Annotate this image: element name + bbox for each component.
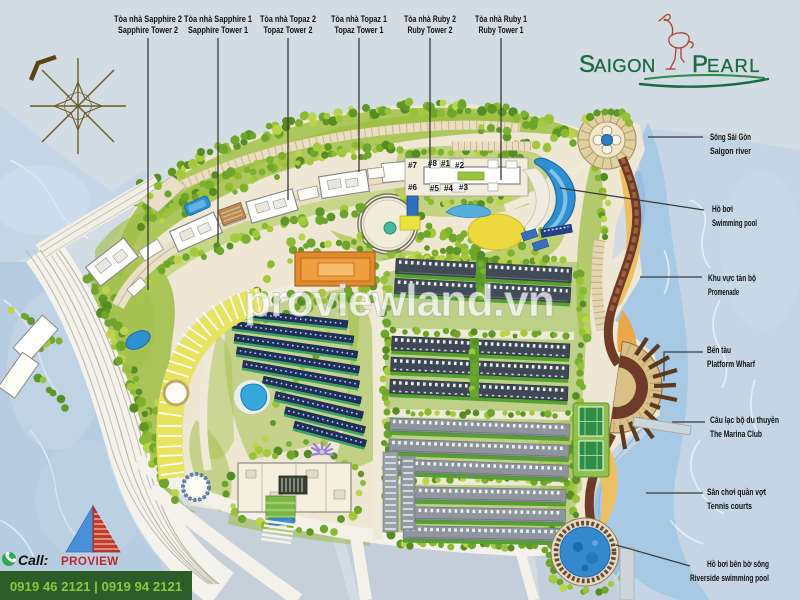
- svg-text:Platform Wharf: Platform Wharf: [707, 359, 756, 370]
- svg-text:AIGON: AIGON: [594, 55, 656, 76]
- svg-text:proviewland.vn: proviewland.vn: [244, 277, 554, 326]
- svg-text:The Marina Club: The Marina Club: [710, 429, 762, 440]
- svg-text:Promenade: Promenade: [708, 287, 739, 298]
- svg-text:Tennis courts: Tennis courts: [707, 501, 752, 512]
- svg-text:Câu lạc bộ du thuyền: Câu lạc bộ du thuyền: [710, 415, 779, 426]
- svg-text:Khu vực tản bộ: Khu vực tản bộ: [708, 273, 756, 284]
- svg-text:Swimming pool: Swimming pool: [712, 218, 757, 229]
- svg-text:PROVIEW: PROVIEW: [61, 555, 119, 568]
- svg-text:Tòa nhà Ruby 1: Tòa nhà Ruby 1: [475, 14, 528, 25]
- svg-text:Saigon river: Saigon river: [710, 146, 751, 157]
- svg-text:Ruby Tower 2: Ruby Tower 2: [408, 25, 453, 36]
- svg-text:#2: #2: [455, 161, 464, 170]
- svg-text:Tòa nhà Sapphire 1: Tòa nhà Sapphire 1: [184, 14, 253, 25]
- svg-text:Tòa nhà Ruby 2: Tòa nhà Ruby 2: [404, 14, 456, 25]
- svg-text:Bến tàu: Bến tàu: [707, 345, 731, 356]
- svg-text:0919 46 2121 | 0919 94 2121: 0919 46 2121 | 0919 94 2121: [10, 579, 182, 594]
- svg-text:#4: #4: [444, 184, 453, 193]
- svg-text:Riverside swimming pool: Riverside swimming pool: [690, 573, 769, 584]
- svg-text:Call:: Call:: [18, 552, 48, 568]
- svg-text:EARL: EARL: [707, 55, 761, 76]
- svg-text:Sông Sài Gòn: Sông Sài Gòn: [710, 132, 751, 143]
- svg-text:Topaz Tower 1: Topaz Tower 1: [335, 25, 385, 36]
- svg-text:Sapphire Tower 2: Sapphire Tower 2: [118, 25, 178, 36]
- svg-text:#7: #7: [408, 161, 417, 170]
- svg-text:Hồ bơi bên bờ sông: Hồ bơi bên bờ sông: [707, 559, 769, 570]
- svg-text:Tòa nhà Topaz 1: Tòa nhà Topaz 1: [331, 14, 388, 25]
- svg-text:S: S: [579, 51, 595, 78]
- svg-text:Hồ bơi: Hồ bơi: [712, 204, 733, 215]
- svg-text:#1: #1: [441, 159, 450, 168]
- svg-text:Sân chơi quần vợt: Sân chơi quần vợt: [707, 487, 767, 498]
- svg-text:#3: #3: [459, 183, 468, 192]
- svg-text:Ruby Tower 1: Ruby Tower 1: [479, 25, 525, 36]
- svg-text:#6: #6: [408, 183, 417, 192]
- svg-text:Topaz Tower 2: Topaz Tower 2: [264, 25, 313, 36]
- svg-text:Tòa nhà Sapphire 2: Tòa nhà Sapphire 2: [114, 14, 182, 25]
- svg-text:Sapphire Tower 1: Sapphire Tower 1: [188, 25, 249, 36]
- svg-text:#5: #5: [430, 184, 439, 193]
- svg-text:P: P: [692, 51, 708, 78]
- svg-text:Tòa nhà Topaz 2: Tòa nhà Topaz 2: [260, 14, 316, 25]
